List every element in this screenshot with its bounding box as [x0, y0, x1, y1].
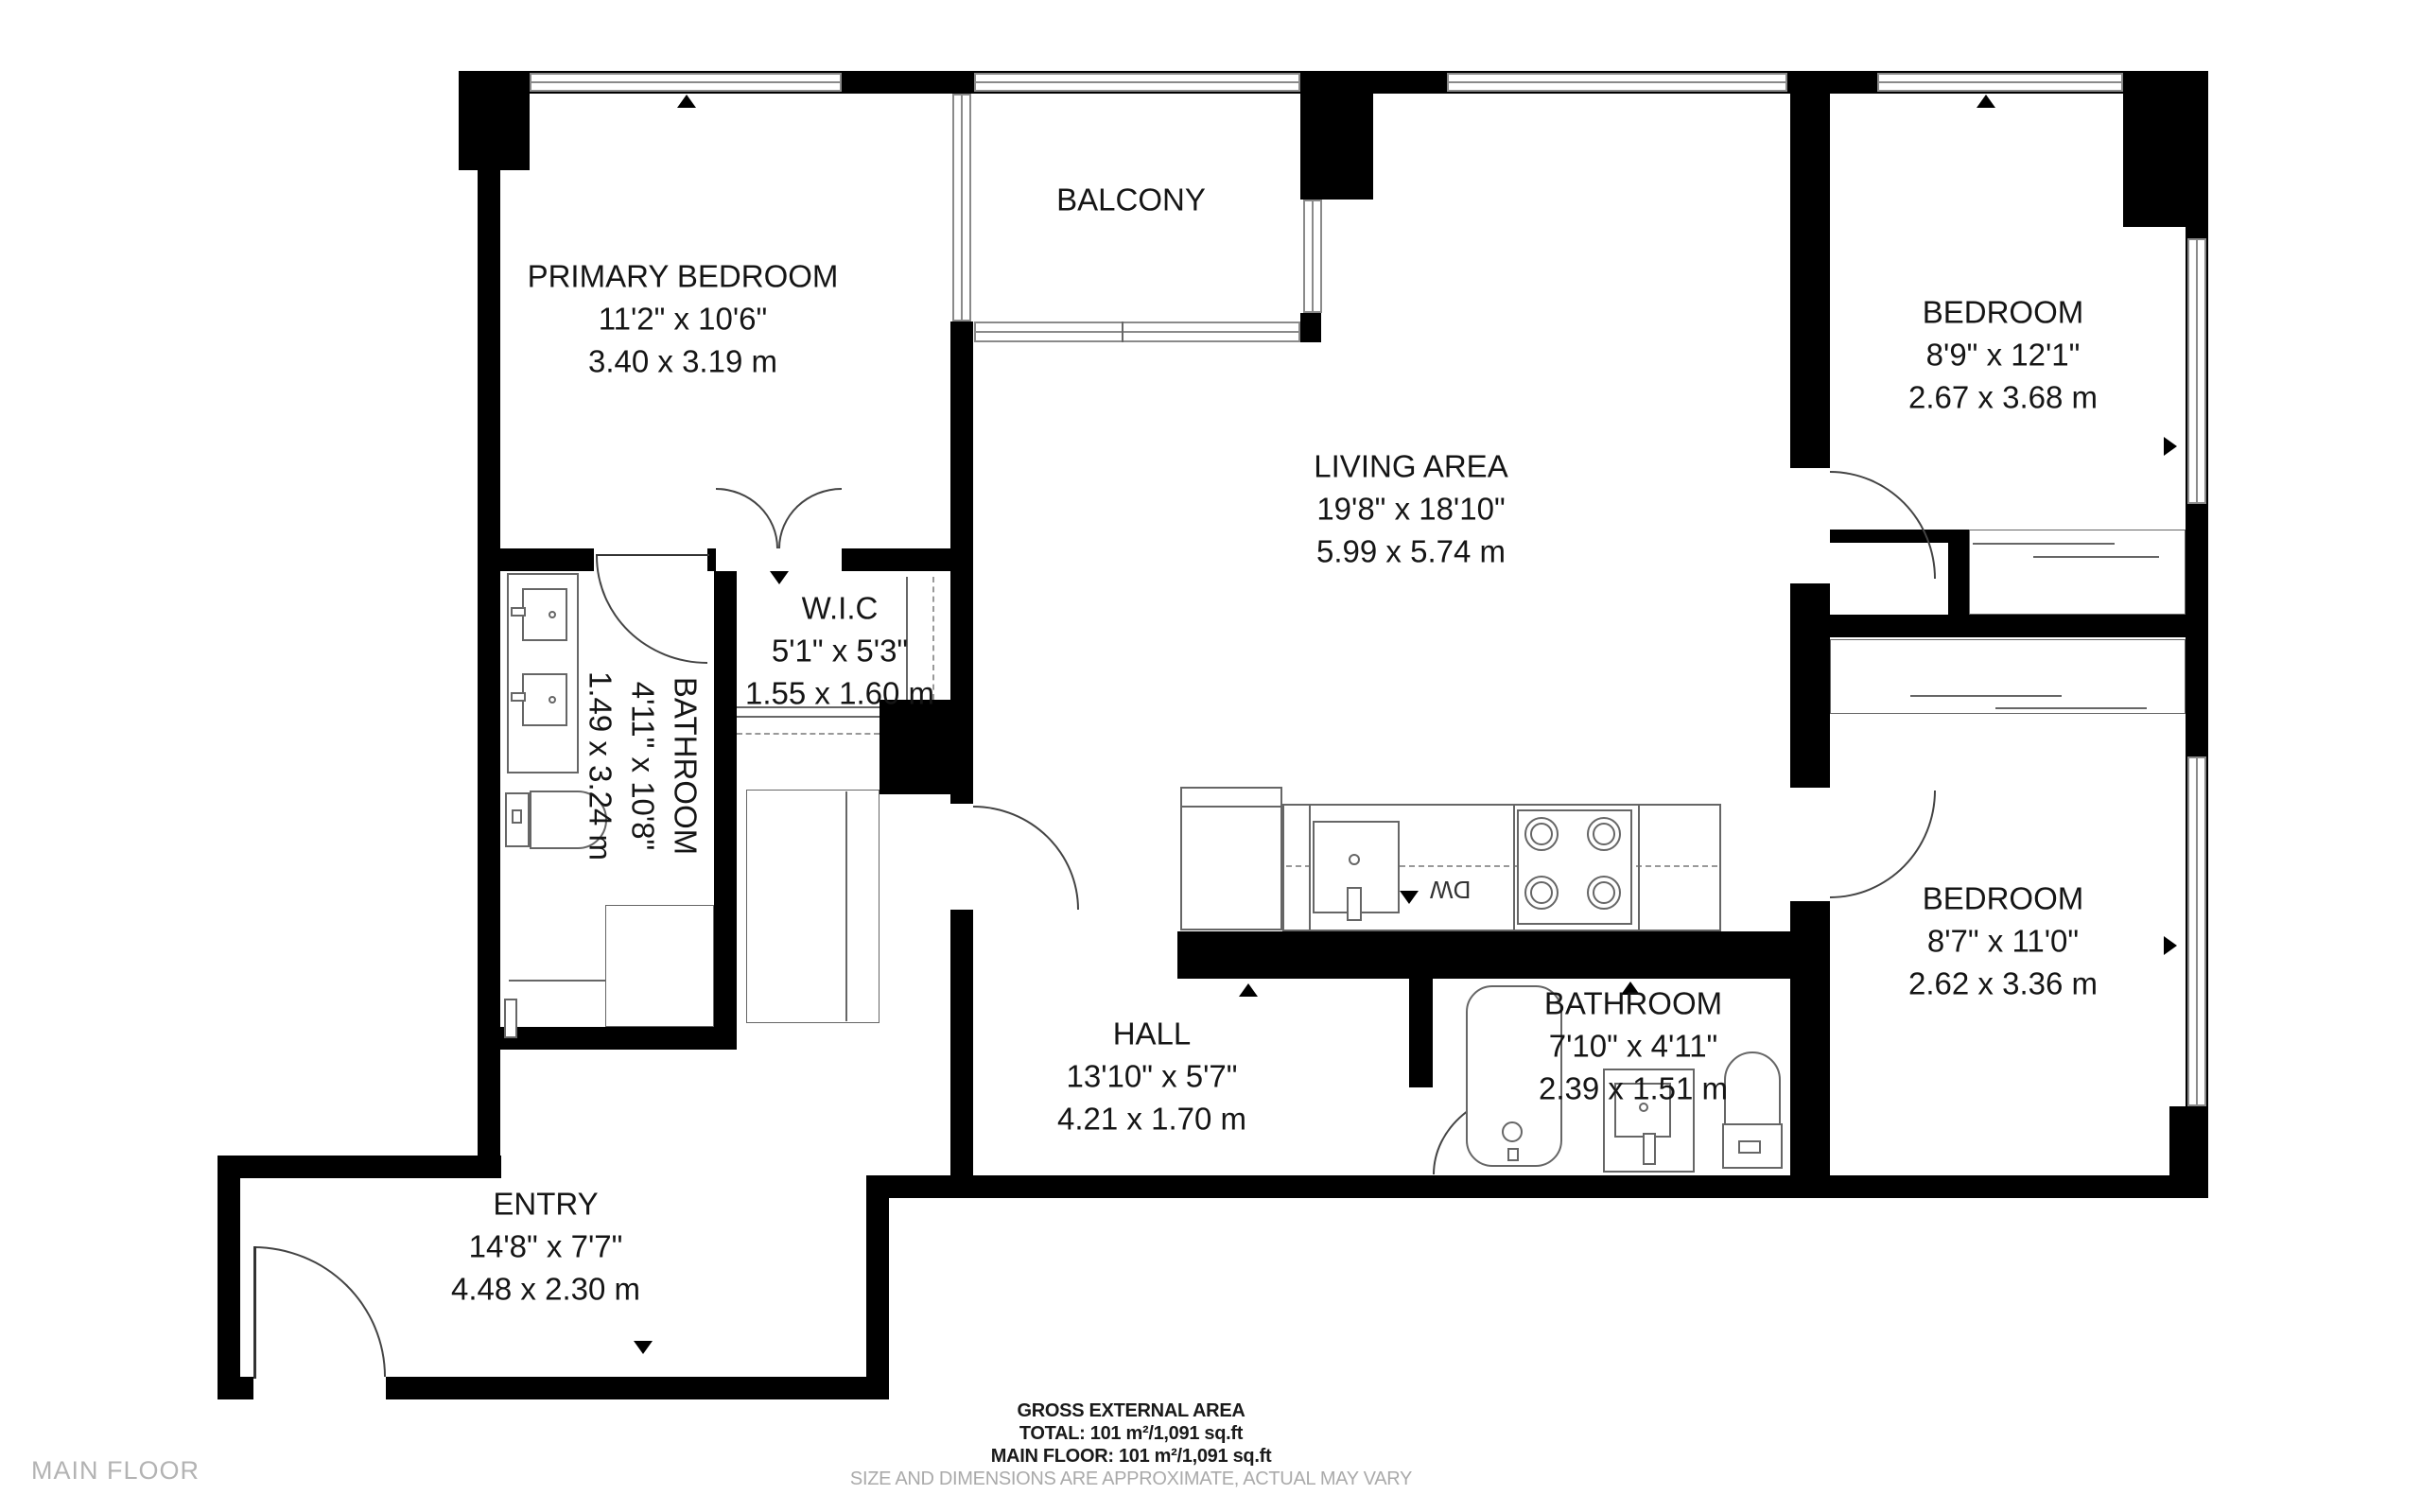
label-bathroom-ensuite: BATHROOM 4'11" x 10'8" 1.49 x 3.24 m [580, 671, 707, 860]
wall-bottom-right-column [2169, 1106, 2208, 1198]
wic-shelf-dashed [737, 733, 880, 735]
arrow-wic-door [957, 711, 970, 730]
room-name: BALCONY [1056, 179, 1206, 221]
area-summary-total: TOTAL: 101 m²/1,091 sq.ft [658, 1422, 1604, 1445]
closet-br-slider-1 [1910, 695, 2062, 697]
arrow-hall [1239, 983, 1258, 997]
room-name: BATHROOM [1539, 982, 1728, 1025]
burner-1-inner [1530, 823, 1553, 845]
wall-entry-top [218, 1156, 501, 1178]
bathtub-faucet [1507, 1148, 1519, 1161]
ensuite-shower [605, 905, 714, 1027]
arrow-entry [634, 1341, 653, 1354]
closet-bedroom-br [1830, 639, 2186, 714]
room-name: PRIMARY BEDROOM [528, 255, 839, 298]
fridge-line [1180, 806, 1282, 808]
arrow-window-primary [677, 95, 696, 108]
bedroom-tr-door-opening [1790, 468, 1830, 583]
room-dims-metric: 2.67 x 3.68 m [1908, 376, 2098, 419]
label-balcony: BALCONY [1056, 179, 1206, 221]
counter-divider-2 [1513, 806, 1515, 930]
arrow-window-tr [2164, 437, 2177, 456]
room-name: ENTRY [451, 1183, 640, 1225]
balcony-sliding-door [974, 322, 1300, 342]
wall-balcony-column [1300, 71, 1373, 200]
area-summary-main-floor: MAIN FLOOR: 101 m²/1,091 sq.ft [658, 1445, 1604, 1468]
room-dims-metric: 5.99 x 5.74 m [1314, 530, 1507, 573]
window-living-top [1447, 73, 1787, 92]
room-name: HALL [1057, 1013, 1246, 1055]
label-living-area: LIVING AREA 19'8" x 18'10" 5.99 x 5.74 m [1314, 445, 1507, 573]
arrow-wall-left [480, 395, 494, 414]
bath-main-door-opening [1409, 1087, 1433, 1175]
primary-double-door-arc-right [778, 488, 842, 548]
window-bedroom-tr-top [1877, 73, 2123, 92]
room-name: W.I.C [745, 587, 934, 630]
floor-plan: DW PRIMARY BEDROOM 11'2" x 10'6" 3.40 x … [0, 0, 2421, 1512]
hall-closet-divider [845, 791, 847, 1021]
bathtub-drain [1502, 1121, 1523, 1142]
room-dims-metric: 1.55 x 1.60 m [745, 672, 934, 715]
room-dims-metric: 4.21 x 1.70 m [1057, 1098, 1246, 1140]
arrow-window-bedroom-tr [1977, 95, 1995, 108]
room-name: LIVING AREA [1314, 445, 1507, 488]
ensuite-door-leaf [596, 554, 709, 556]
dishwasher-label: DW [1430, 875, 1471, 904]
room-dims-metric: 3.40 x 3.19 m [528, 340, 839, 383]
ensuite-sink-2-faucet [511, 692, 526, 702]
kitchen-sink-handle [1347, 887, 1362, 921]
room-dims-imperial: 5'1" x 5'3" [745, 630, 934, 672]
label-primary-bedroom: PRIMARY BEDROOM 11'2" x 10'6" 3.40 x 3.1… [528, 255, 839, 383]
wall-balcony-column-small [1300, 313, 1321, 342]
window-bedroom-br-right [2187, 756, 2206, 1106]
kitchen-sink-faucet [1349, 854, 1360, 865]
window-balcony-right [1303, 200, 1322, 313]
wall-entry-step [866, 1198, 889, 1399]
bedroom-tr-door-arc [1830, 471, 1936, 579]
entry-door-leaf [253, 1246, 256, 1379]
closet-tr-slider-1 [1973, 543, 2115, 545]
wall-ensuite-bottom [500, 1027, 737, 1050]
window-balcony-rail [974, 73, 1300, 92]
wall-kitchen-bath [1177, 931, 1830, 979]
burner-2-inner [1593, 823, 1615, 845]
floor-label: MAIN FLOOR [31, 1456, 200, 1486]
window-bedroom-tr-right [2187, 238, 2206, 504]
wic-shelf-2 [737, 716, 880, 718]
burner-4-inner [1593, 881, 1615, 904]
room-dims-metric: 2.39 x 1.51 m [1539, 1068, 1728, 1110]
area-summary: GROSS EXTERNAL AREA TOTAL: 101 m²/1,091 … [658, 1399, 1604, 1490]
fridge [1180, 787, 1282, 930]
bedroom-br-door-opening [1790, 788, 1830, 901]
label-bathroom-main: BATHROOM 7'10" x 4'11" 2.39 x 1.51 m [1539, 982, 1728, 1110]
arrow-window-br [2164, 936, 2177, 955]
label-hall: HALL 13'10" x 5'7" 4.21 x 1.70 m [1057, 1013, 1246, 1140]
ensuite-door-arc [596, 556, 707, 664]
label-entry: ENTRY 14'8" x 7'7" 4.48 x 2.30 m [451, 1183, 640, 1311]
room-dims-imperial: 7'10" x 4'11" [1539, 1025, 1728, 1068]
wall-bottom-main [866, 1175, 2208, 1198]
ensuite-shower-fixture [504, 999, 517, 1038]
room-name: BATHROOM [665, 671, 707, 860]
wic-hall-door-opening [950, 804, 973, 910]
room-dims-metric: 1.49 x 3.24 m [580, 671, 622, 860]
hall-closet [746, 790, 880, 1023]
entry-door-opening [253, 1377, 386, 1399]
balcony-sliding-door-tick [1122, 322, 1123, 342]
ensuite-toilet-button [512, 809, 522, 824]
room-dims-metric: 2.62 x 3.36 m [1908, 963, 2098, 1005]
primary-double-door-arc-left [716, 488, 778, 548]
wall-entry-left [218, 1156, 240, 1399]
label-wic: W.I.C 5'1" x 5'3" 1.55 x 1.60 m [745, 587, 934, 715]
room-dims-imperial: 8'7" x 11'0" [1908, 920, 2098, 963]
wall-top-right-column [2123, 71, 2208, 227]
ensuite-sink-2-drain [549, 696, 556, 704]
room-name: BEDROOM [1908, 291, 2098, 334]
wall-bedroom-balcony-divider [950, 322, 973, 571]
window-bedroom-balcony [952, 94, 971, 322]
ensuite-sink-1-faucet [511, 607, 526, 617]
arrow-stove [1400, 891, 1419, 904]
label-bedroom-bottom-right: BEDROOM 8'7" x 11'0" 2.62 x 3.36 m [1908, 878, 2098, 1005]
arrow-double-door [770, 571, 789, 584]
closet-br-slider-2 [1995, 707, 2147, 709]
entry-door-arc [253, 1246, 386, 1377]
wall-left [478, 71, 500, 1178]
counter-divider-3 [1638, 806, 1640, 930]
wic-hall-door-arc [973, 806, 1079, 910]
burner-3-inner [1530, 881, 1553, 904]
room-dims-imperial: 19'8" x 18'10" [1314, 488, 1507, 530]
bath-main-toilet-button [1738, 1140, 1761, 1154]
room-dims-imperial: 4'11" x 10'8" [622, 671, 665, 860]
label-bedroom-top-right: BEDROOM 8'9" x 12'1" 2.67 x 3.68 m [1908, 291, 2098, 419]
wall-ensuite-right [714, 548, 737, 1050]
primary-double-door-opening [716, 548, 842, 571]
area-summary-title: GROSS EXTERNAL AREA [658, 1399, 1604, 1422]
counter-divider-1 [1309, 806, 1311, 930]
room-dims-imperial: 13'10" x 5'7" [1057, 1055, 1246, 1098]
ensuite-sink-1-drain [549, 611, 556, 618]
wall-top-left-corner [459, 71, 530, 170]
room-dims-imperial: 14'8" x 7'7" [451, 1225, 640, 1268]
area-summary-disclaimer: SIZE AND DIMENSIONS ARE APPROXIMATE, ACT… [658, 1468, 1604, 1490]
room-dims-imperial: 11'2" x 10'6" [528, 298, 839, 340]
room-dims-metric: 4.48 x 2.30 m [451, 1268, 640, 1311]
ensuite-sink-2 [522, 673, 567, 726]
room-name: BEDROOM [1908, 878, 2098, 920]
closet-tr-slider-2 [2033, 556, 2159, 558]
ensuite-sink-1 [522, 588, 567, 641]
room-dims-imperial: 8'9" x 12'1" [1908, 334, 2098, 376]
window-primary-bedroom-top [530, 73, 842, 92]
bath-main-toilet-bowl [1724, 1051, 1781, 1129]
wall-closet-mid [1790, 615, 2208, 637]
bath-main-sink-handle [1643, 1133, 1656, 1165]
